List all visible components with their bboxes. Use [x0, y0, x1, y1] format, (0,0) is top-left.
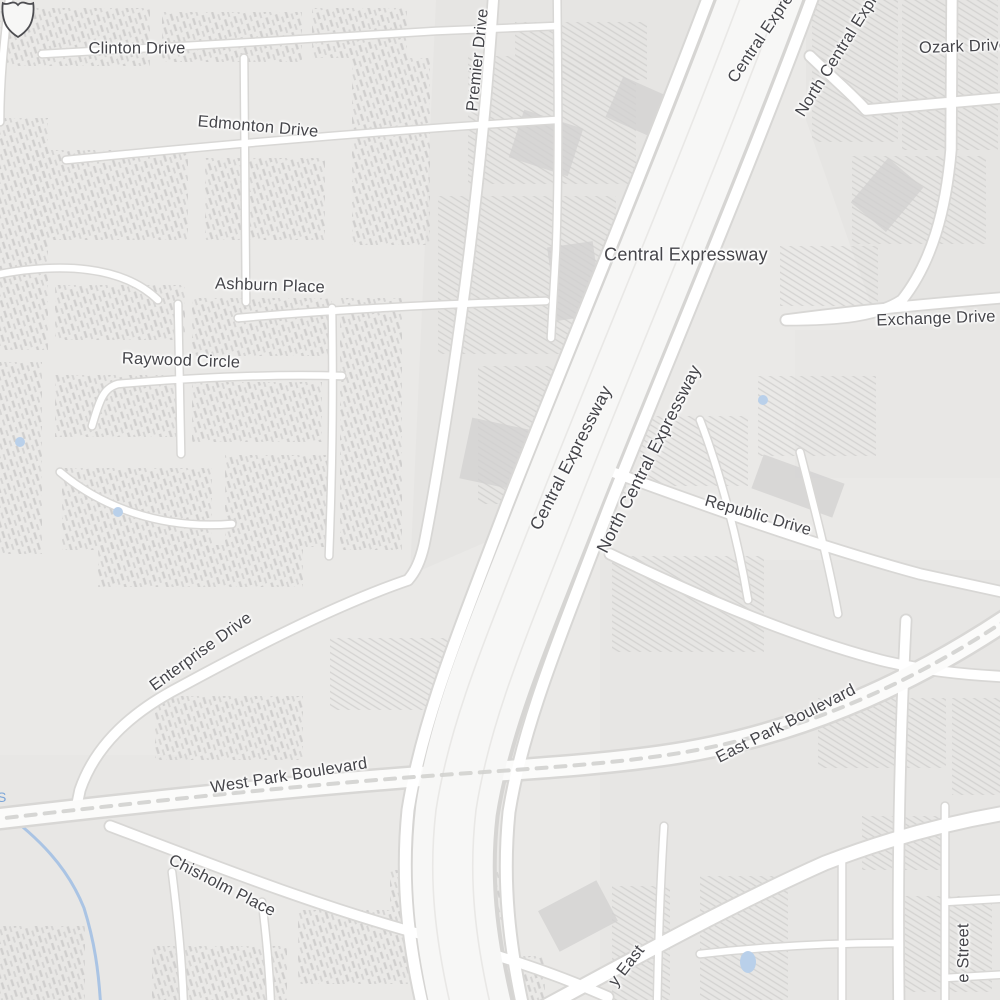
street-label-ozark-drive: Ozark Drive [919, 36, 1000, 58]
us-route-shield-icon [0, 0, 36, 40]
street-label-ashburn-place: Ashburn Place [215, 275, 326, 298]
map-canvas[interactable]: Clinton Drive Edmonton Drive Ashburn Pla… [0, 0, 1000, 1000]
street-label-street-fragment: e Street [955, 923, 974, 982]
map-tile-graphics [0, 0, 1000, 1000]
water-label-fragment: S [0, 789, 7, 805]
street-label-central-expressway-shielded: Central Expressway [604, 245, 768, 266]
street-label-clinton-drive: Clinton Drive [88, 40, 185, 59]
street-label-raywood-circle: Raywood Circle [122, 349, 241, 372]
